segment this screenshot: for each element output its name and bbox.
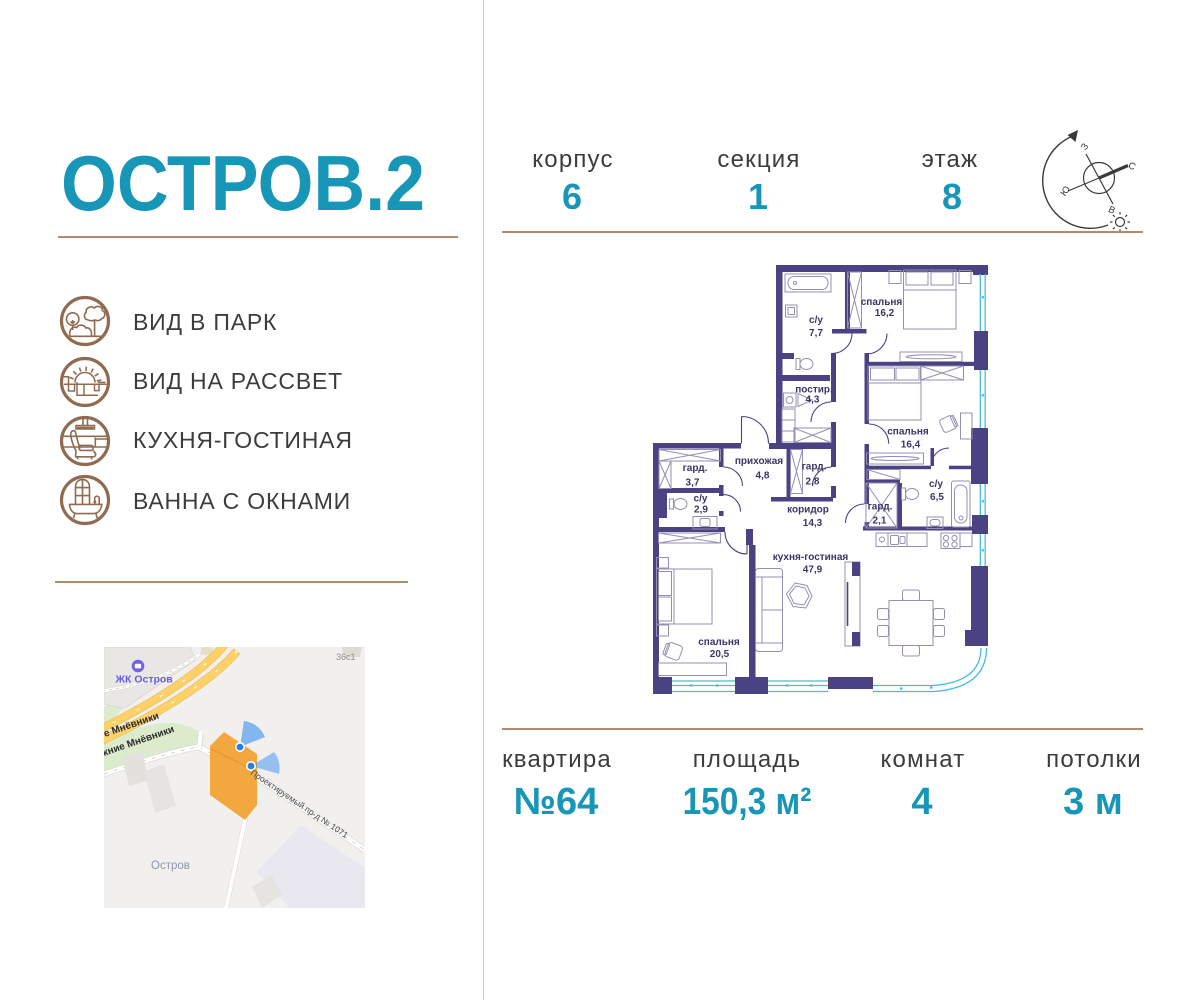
svg-text:4,3: 4,3 (806, 395, 820, 406)
svg-text:спальня: спальня (861, 297, 903, 308)
svg-text:кухня-гостиная: кухня-гостиная (773, 552, 849, 563)
svg-text:4,8: 4,8 (756, 471, 770, 482)
svg-text:гард.: гард. (802, 462, 827, 473)
svg-text:16,2: 16,2 (875, 308, 895, 319)
svg-text:с/у: с/у (809, 315, 823, 326)
svg-text:2,8: 2,8 (806, 477, 820, 488)
svg-text:прихожая: прихожая (735, 456, 783, 467)
svg-text:14,3: 14,3 (803, 518, 823, 529)
svg-text:16,4: 16,4 (901, 440, 921, 451)
svg-text:спальня: спальня (887, 427, 929, 438)
svg-text:2,1: 2,1 (873, 516, 887, 527)
svg-text:7,7: 7,7 (809, 328, 823, 339)
svg-text:В: В (1106, 204, 1116, 217)
svg-text:ЖК Остров: ЖК Остров (115, 674, 174, 686)
svg-text:гард.: гард. (683, 463, 708, 474)
svg-text:36с1: 36с1 (336, 652, 356, 662)
svg-text:Остров: Остров (151, 860, 190, 872)
svg-text:С: С (1126, 160, 1137, 173)
svg-text:3,7: 3,7 (686, 478, 700, 489)
svg-text:З: З (1079, 141, 1091, 152)
svg-text:спальня: спальня (698, 637, 740, 648)
svg-text:2,9: 2,9 (694, 505, 708, 516)
svg-text:Ю: Ю (1058, 184, 1073, 199)
svg-text:гард.: гард. (868, 502, 893, 513)
svg-text:6,5: 6,5 (930, 492, 944, 503)
svg-text:20,5: 20,5 (710, 649, 730, 660)
svg-text:коридор: коридор (787, 505, 829, 516)
svg-text:47,9: 47,9 (803, 565, 823, 576)
svg-text:с/у: с/у (929, 479, 943, 490)
svg-text:с/у: с/у (694, 494, 708, 505)
